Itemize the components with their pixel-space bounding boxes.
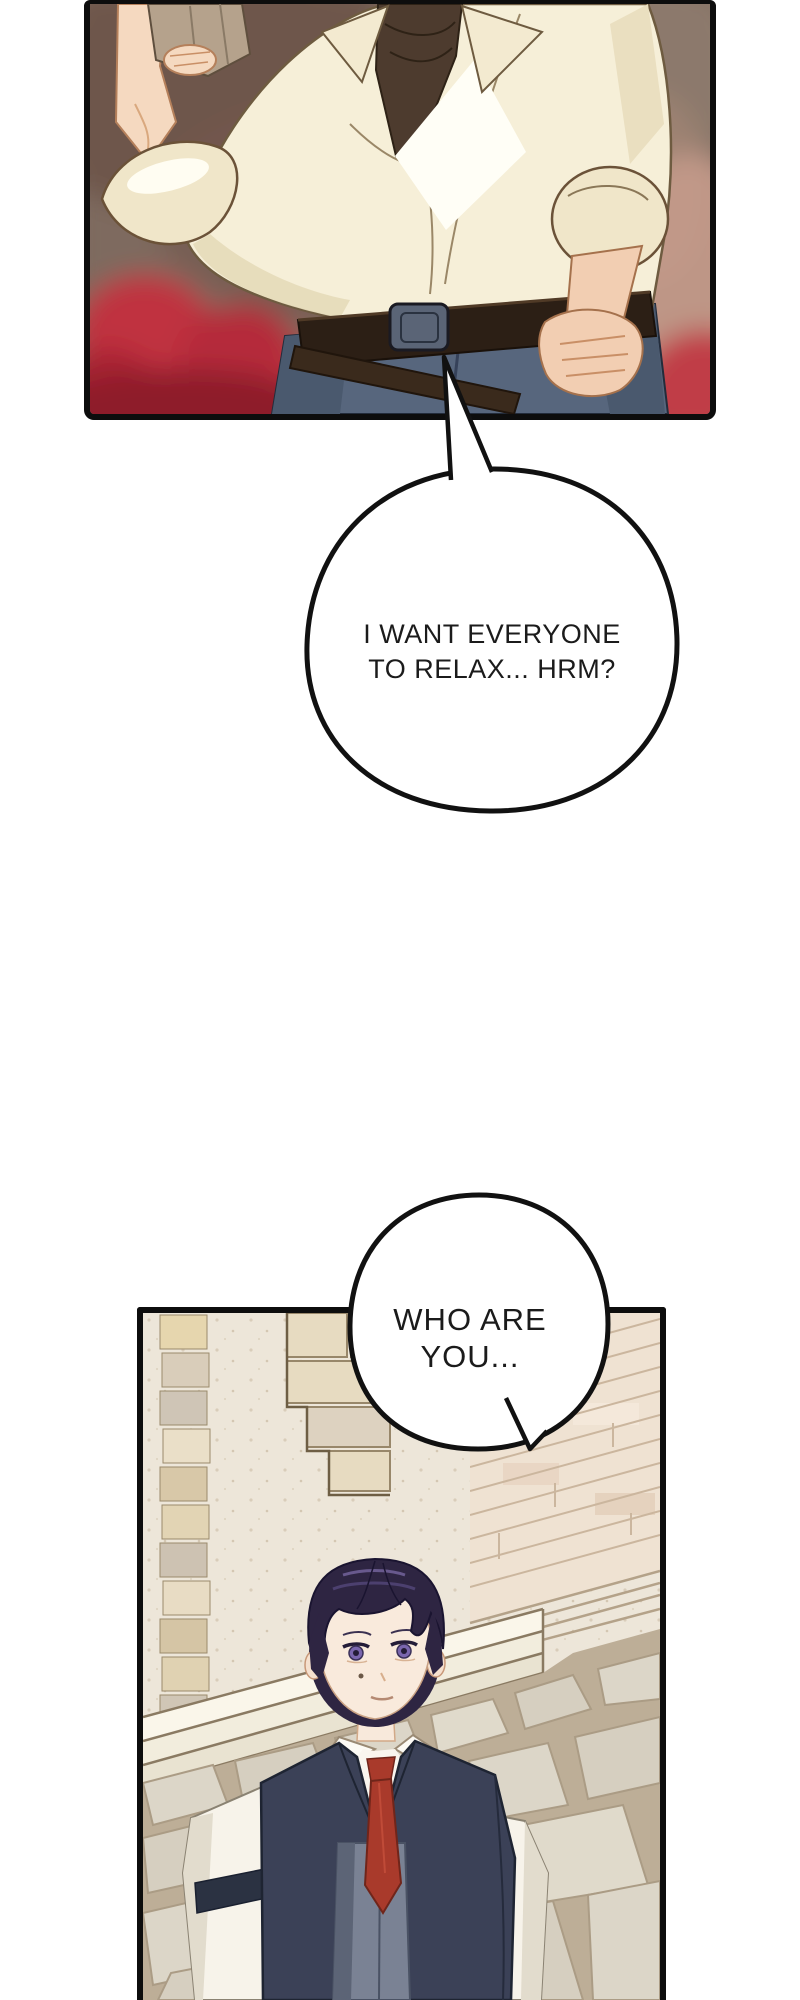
bubble-1-text: I WANT EVERYONE TO RELAX... HRM? [332, 617, 652, 687]
bubble-2-line-2: YOU... [350, 1338, 590, 1375]
speech-bubble-layer [0, 0, 800, 2000]
bubble-1-line-2: TO RELAX... HRM? [332, 652, 652, 687]
bubble-2-line-1: WHO ARE [350, 1301, 590, 1338]
bubble-1-line-1: I WANT EVERYONE [332, 617, 652, 652]
bubble-1-tail [444, 357, 492, 480]
bubble-2-text: WHO ARE YOU... [350, 1301, 590, 1375]
comic-page: { "page": { "kind": "webtoon comic strip… [0, 0, 800, 2000]
